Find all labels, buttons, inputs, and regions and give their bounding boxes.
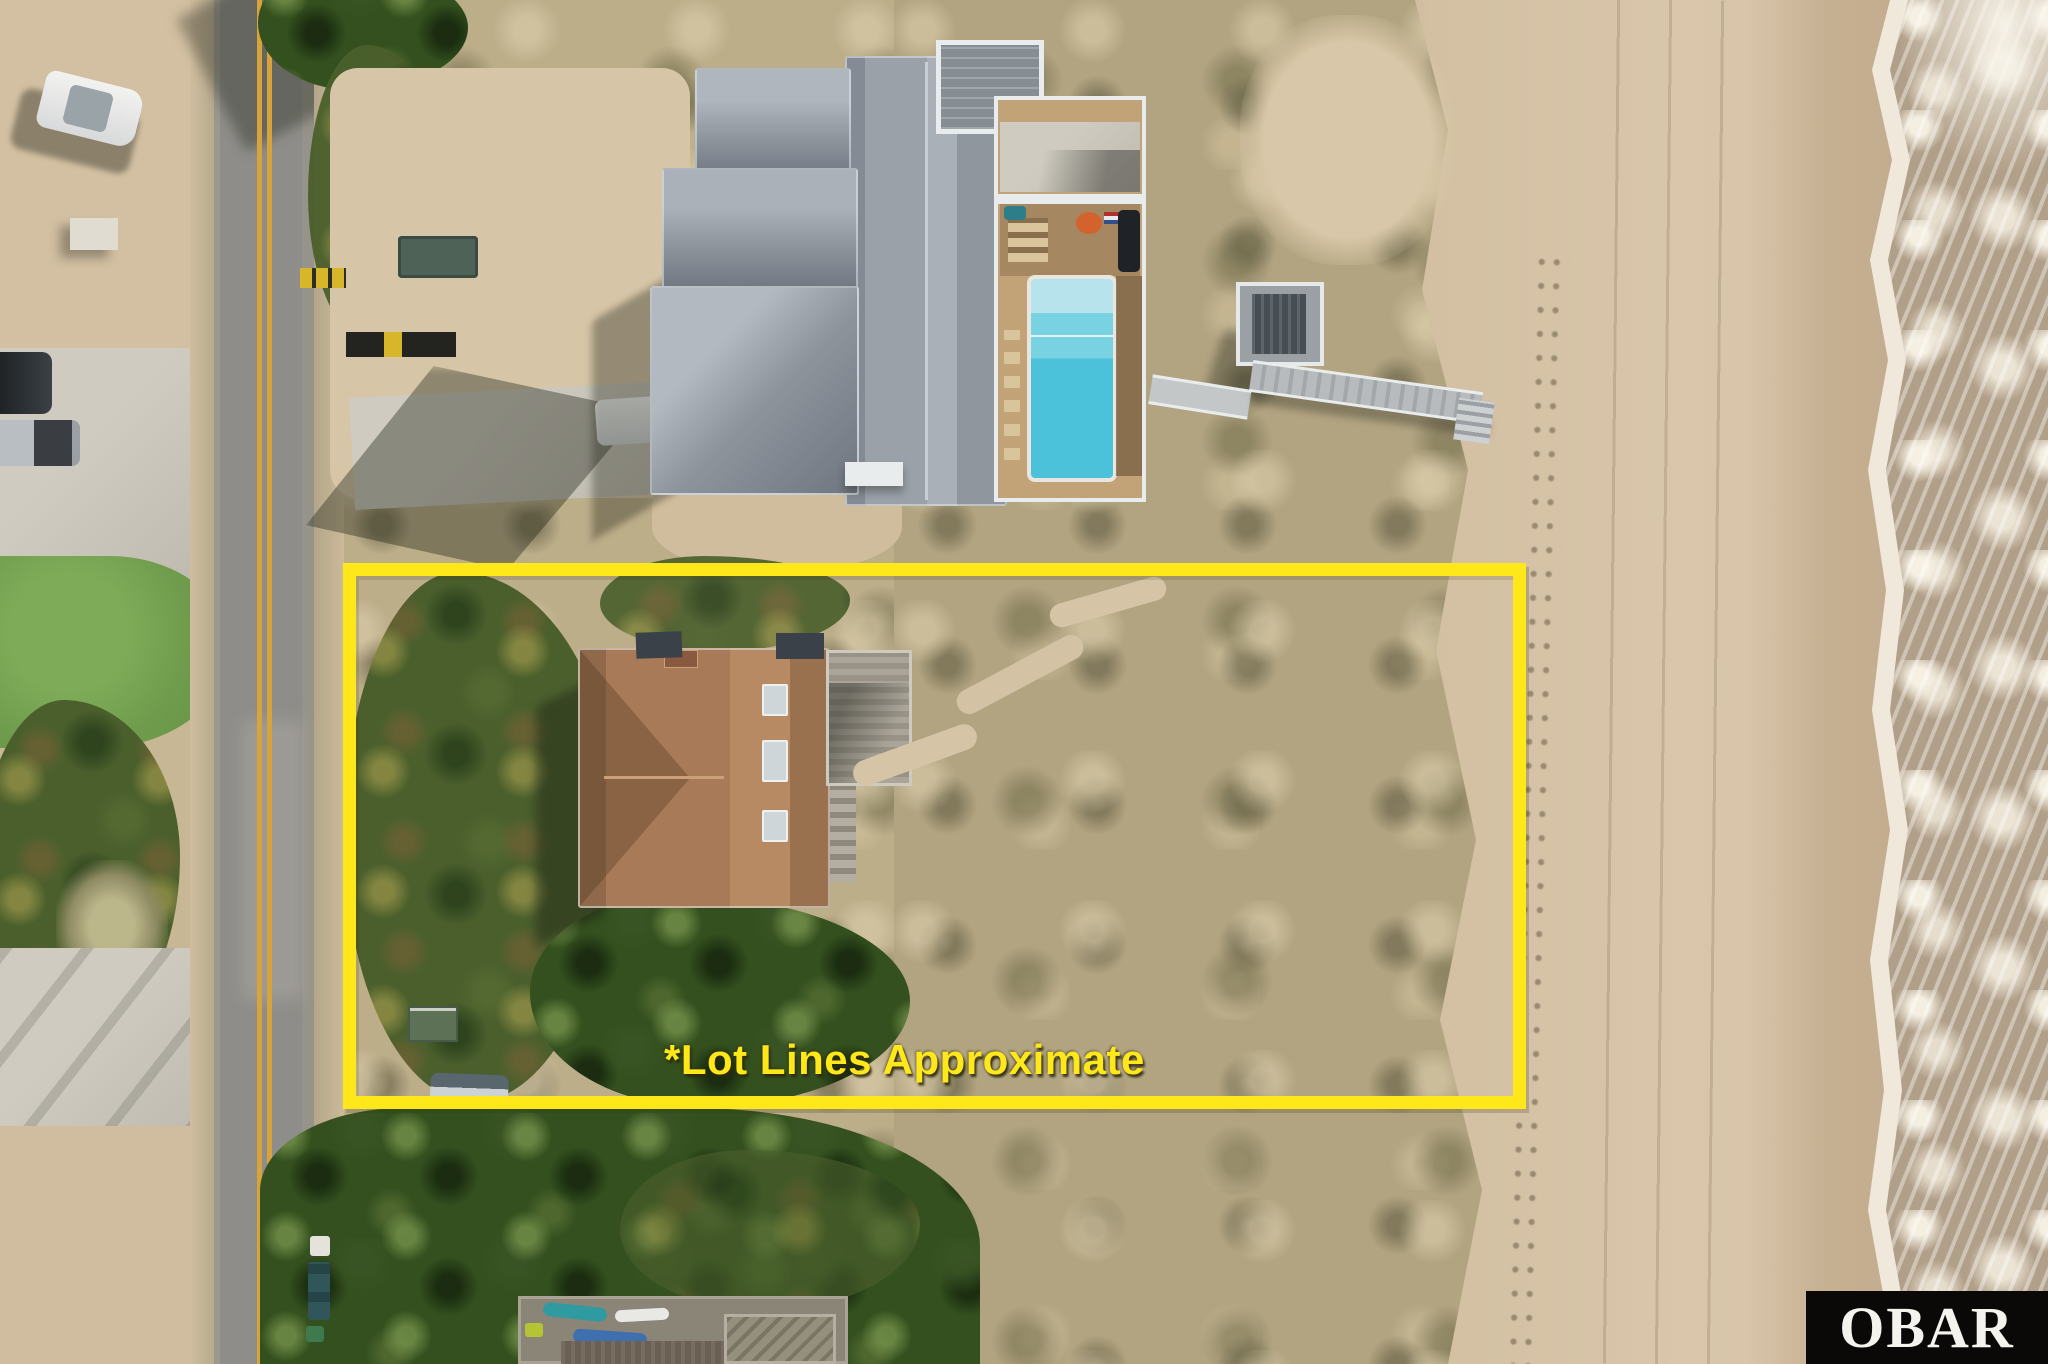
left-sand-lot — [0, 0, 216, 380]
driveway-shadow-stripes — [0, 948, 218, 1138]
patio-concrete — [1000, 122, 1140, 192]
lounge-chairs-cluster — [1008, 218, 1048, 262]
teal-umbrella — [1004, 206, 1026, 220]
pavilion-roof — [1252, 294, 1306, 354]
patio-shadow — [1000, 150, 1140, 192]
parked-silver-truck — [0, 420, 80, 466]
obar-watermark: OBAR — [1806, 1291, 2048, 1364]
parked-dark-suv-deck — [1118, 210, 1140, 272]
dumpster-row — [346, 332, 456, 357]
ocean-surf — [1880, 0, 2048, 1364]
main-house-gable-north — [695, 68, 851, 172]
pool-deck-complex — [994, 96, 1146, 502]
road-worn-patch — [242, 720, 304, 1000]
pool-loungers-left — [1004, 330, 1020, 460]
beach-tire-tracks — [1579, 0, 1743, 1364]
dune-sand-pocket — [1240, 15, 1455, 265]
roadside-bin-white — [310, 1236, 330, 1256]
house-south-deck — [845, 462, 903, 486]
concrete-driveway-lower — [0, 948, 218, 1138]
road-shoulder-left — [190, 0, 216, 1364]
small-yellow-bins — [300, 268, 346, 288]
kayak-white — [615, 1308, 670, 1323]
lot-boundary-overlay — [343, 563, 1526, 1109]
aerial-photo: *Lot Lines Approximate OBAR — [0, 0, 2048, 1364]
roadside-bin-green — [306, 1326, 324, 1342]
kayak-teal — [542, 1302, 607, 1323]
utility-shed — [70, 218, 118, 250]
pool — [1027, 275, 1117, 482]
boardwalk-end-stairs — [1453, 398, 1494, 445]
orange-umbrella — [1076, 212, 1102, 234]
furniture-deck — [1000, 204, 1140, 276]
pergola-rail — [998, 194, 1142, 204]
roof-ridge-line — [925, 62, 928, 500]
lot-lines-label: *Lot Lines Approximate — [664, 1036, 1145, 1084]
main-house-gable-mid — [662, 168, 858, 290]
car-roof-glass — [62, 84, 114, 133]
wet-concrete-strip — [1116, 276, 1142, 476]
roadside-bins-teal — [308, 1262, 330, 1320]
parked-dark-car — [0, 352, 52, 414]
septic-lids — [398, 236, 478, 278]
lime-chair — [525, 1323, 543, 1337]
left-bottom-sand — [0, 1126, 220, 1364]
obar-logo-text: OBAR — [1839, 1299, 2015, 1357]
bottom-right-deck — [724, 1314, 836, 1364]
boardwalk-platform — [1236, 282, 1324, 366]
main-house-gable-south — [650, 286, 859, 495]
surf-foam-crest — [1900, 0, 2048, 170]
pool-lane-line — [1031, 335, 1113, 337]
